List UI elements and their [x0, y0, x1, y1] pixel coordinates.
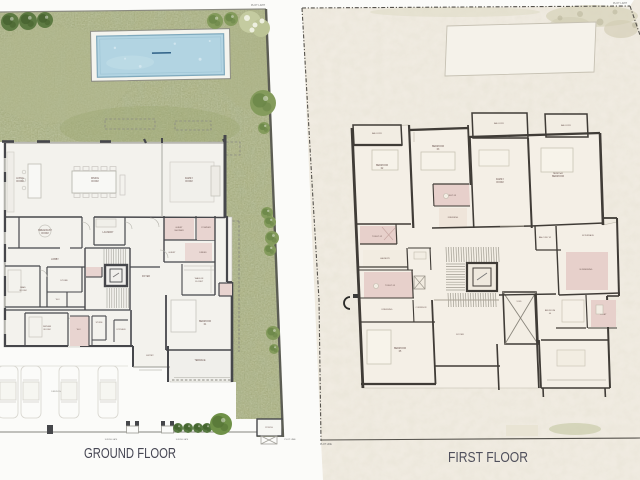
- svg-text:ROOM: ROOM: [16, 181, 23, 183]
- svg-text:BEDROOM: BEDROOM: [545, 310, 556, 312]
- svg-text:VOID: VOID: [517, 301, 522, 303]
- svg-text:ROOM: ROOM: [20, 290, 27, 292]
- svg-text:STORE: STORE: [96, 322, 104, 324]
- svg-text:M.DRESSING: M.DRESSING: [580, 269, 593, 271]
- svg-text:GROUND FLOOR: GROUND FLOOR: [84, 446, 176, 462]
- svg-text:BREAKFAST: BREAKFAST: [38, 229, 52, 232]
- svg-text:BEDROOM: BEDROOM: [199, 321, 211, 323]
- svg-text:BEDROOM: BEDROOM: [552, 176, 564, 178]
- svg-text:STORE: STORE: [60, 280, 68, 282]
- svg-text:TERRACE: TERRACE: [195, 359, 206, 362]
- svg-text:DINING: DINING: [91, 178, 99, 180]
- svg-text:LOBBY: LOBBY: [51, 259, 59, 261]
- svg-text:ROOM: ROOM: [185, 181, 192, 183]
- svg-text:SLIDING GATE: SLIDING GATE: [105, 438, 118, 441]
- svg-text:LIVING: LIVING: [16, 178, 24, 180]
- svg-text:W.C.: W.C.: [77, 329, 82, 331]
- svg-text:PLOT LINE: PLOT LINE: [284, 439, 296, 441]
- svg-text:FIRST FLOOR: FIRST FLOOR: [448, 450, 528, 466]
- svg-text:FAMILY: FAMILY: [496, 178, 504, 181]
- svg-text:CORRIDOR: CORRIDOR: [416, 307, 427, 309]
- svg-text:FOYER: FOYER: [456, 334, 464, 336]
- svg-text:FAMILY: FAMILY: [185, 177, 193, 180]
- svg-text:TOILET 05: TOILET 05: [385, 285, 396, 287]
- svg-text:ROOM: ROOM: [44, 329, 51, 331]
- svg-text:BALCONY 02: BALCONY 02: [539, 236, 552, 239]
- svg-text:BEDROOM: BEDROOM: [376, 165, 388, 167]
- svg-text:ROOM: ROOM: [41, 233, 48, 235]
- svg-text:BEDROOM: BEDROOM: [394, 348, 406, 350]
- svg-text:WALK-IN: WALK-IN: [195, 277, 204, 280]
- svg-text:GUEST: GUEST: [175, 227, 183, 229]
- svg-text:ENTRY: ENTRY: [146, 355, 154, 357]
- svg-text:DRESSING: DRESSING: [448, 217, 459, 219]
- svg-text:PLOT LIMIT: PLOT LIMIT: [613, 1, 627, 5]
- svg-text:BALCONY: BALCONY: [561, 124, 572, 127]
- svg-text:LAUNDRY: LAUNDRY: [380, 257, 391, 260]
- svg-text:PLOT LINE: PLOT LINE: [320, 444, 332, 446]
- svg-text:CLOSET: CLOSET: [195, 281, 204, 283]
- svg-text:ROOM: ROOM: [91, 181, 98, 183]
- svg-text:BEDROOM: BEDROOM: [432, 146, 444, 148]
- svg-text:W.C.: W.C.: [56, 299, 61, 301]
- svg-text:DRESS: DRESS: [199, 252, 207, 254]
- svg-text:PLOT LIMIT: PLOT LIMIT: [251, 3, 265, 7]
- svg-text:KITCHEN: KITCHEN: [117, 329, 126, 331]
- svg-text:FOYER: FOYER: [142, 276, 150, 278]
- svg-text:MAID: MAID: [20, 286, 26, 289]
- svg-text:PORCH: PORCH: [265, 427, 273, 429]
- svg-text:SLIDING GATE: SLIDING GATE: [176, 438, 189, 441]
- svg-text:DRIVER: DRIVER: [43, 326, 52, 328]
- svg-text:MASTER: MASTER: [553, 172, 563, 175]
- svg-text:ROOM: ROOM: [496, 182, 503, 184]
- svg-text:BALCONY: BALCONY: [494, 122, 505, 125]
- svg-text:BALCONY: BALCONY: [372, 132, 383, 135]
- svg-text:TOILET 02: TOILET 02: [372, 236, 383, 238]
- svg-text:GUEST: GUEST: [168, 252, 176, 254]
- svg-text:SHOWER: SHOWER: [174, 230, 184, 232]
- svg-text:M.TERRACE: M.TERRACE: [582, 234, 594, 237]
- svg-text:POWDER: POWDER: [201, 227, 211, 229]
- svg-text:LAUNDRY: LAUNDRY: [103, 231, 114, 234]
- svg-text:DRESSING: DRESSING: [382, 309, 393, 311]
